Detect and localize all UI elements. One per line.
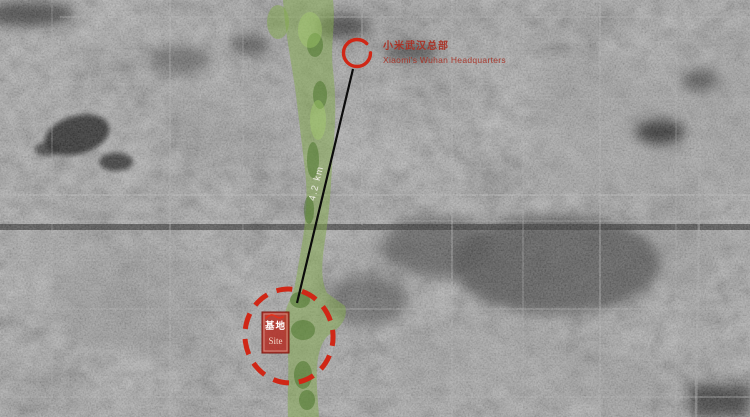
hq-label-zh: 小米武汉总部: [382, 39, 449, 52]
map-canvas: 小米武汉总部 Xiaomi's Wuhan Headquarters 4.2 k…: [0, 0, 750, 417]
annotated-satellite-map: 小米武汉总部 Xiaomi's Wuhan Headquarters 4.2 k…: [0, 0, 750, 417]
film-grain: [0, 0, 750, 417]
hq-label-en: Xiaomi's Wuhan Headquarters: [383, 55, 506, 65]
site-label-zh: 基地: [264, 320, 286, 332]
site-label-en: Site: [268, 336, 282, 346]
